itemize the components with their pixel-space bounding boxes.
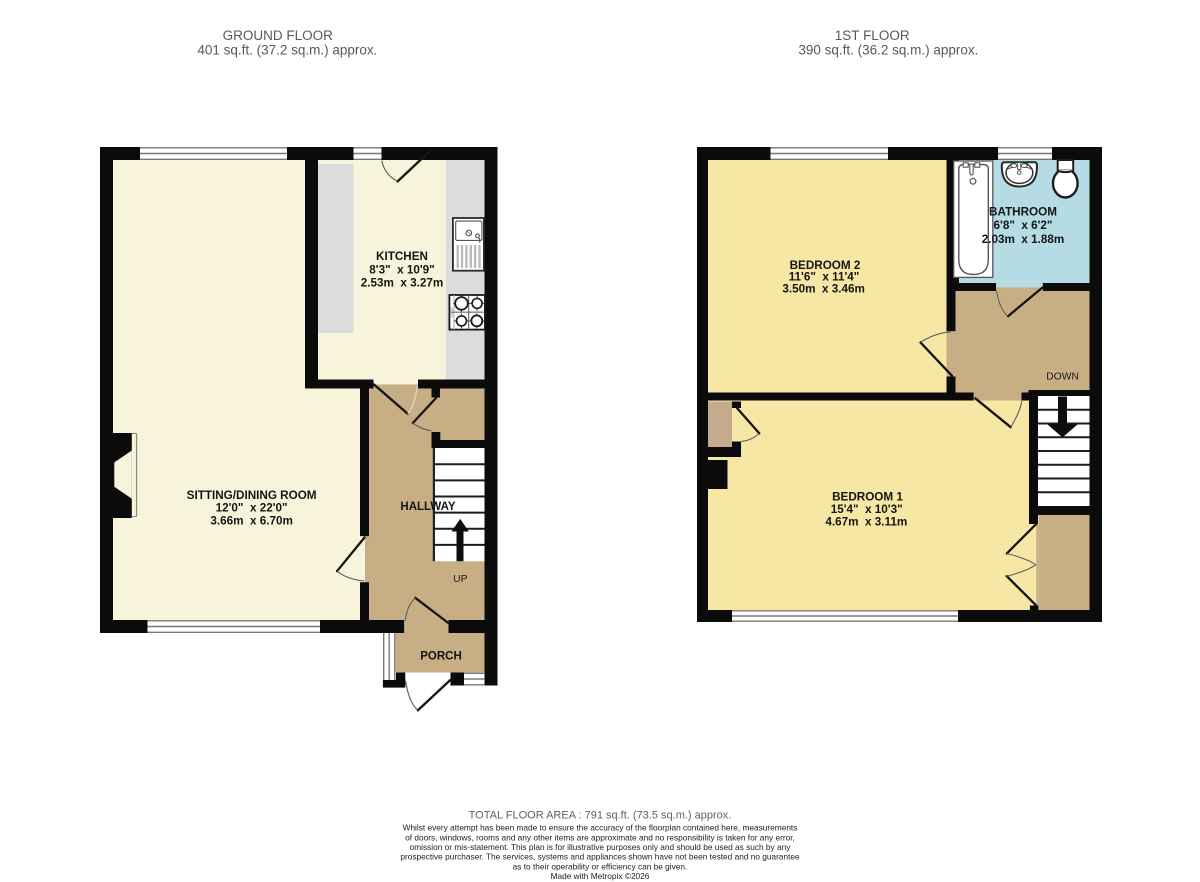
svg-text:prospective purchaser. The ser: prospective purchaser. The services, sys… (400, 852, 800, 862)
svg-text:BATHROOM: BATHROOM (989, 205, 1057, 218)
svg-text:KITCHEN: KITCHEN (376, 250, 428, 263)
svg-text:BEDROOM 1: BEDROOM 1 (832, 491, 903, 504)
svg-text:HALLWAY: HALLWAY (400, 501, 455, 513)
svg-text:4.67m x 3.11m: 4.67m x 3.11m (825, 515, 907, 528)
svg-text:3.50m x 3.46m: 3.50m x 3.46m (782, 282, 865, 295)
svg-text:GROUND FLOOR: GROUND FLOOR (223, 28, 334, 43)
svg-text:1ST FLOOR: 1ST FLOOR (835, 28, 910, 43)
svg-text:PORCH: PORCH (420, 650, 462, 662)
svg-text:5000: 5000 (449, 307, 454, 318)
svg-text:omission or mis-statement. Thi: omission or mis-statement. This plan is … (410, 842, 792, 852)
svg-text:2.53m x 3.27m: 2.53m x 3.27m (361, 276, 444, 289)
svg-text:12'0" x 22'0": 12'0" x 22'0" (216, 502, 288, 515)
svg-text:Whilst every attempt has been: Whilst every attempt has been made to en… (403, 823, 798, 833)
svg-text:3.66m x 6.70m: 3.66m x 6.70m (210, 514, 293, 527)
svg-text:of doors, windows, rooms and a: of doors, windows, rooms and any other i… (405, 832, 795, 842)
svg-text:Made with Metropix ©2026: Made with Metropix ©2026 (551, 871, 650, 881)
svg-text:as to their operability or eff: as to their operability or efficiency ca… (513, 861, 688, 871)
svg-text:SITTING/DINING ROOM: SITTING/DINING ROOM (187, 489, 317, 502)
svg-text:TOTAL FLOOR AREA : 791 sq.ft.: TOTAL FLOOR AREA : 791 sq.ft. (73.5 sq.m… (469, 809, 732, 821)
svg-text:390 sq.ft. (36.2 sq.m.) approx: 390 sq.ft. (36.2 sq.m.) approx. (798, 43, 978, 58)
svg-text:401 sq.ft. (37.2 sq.m.) approx: 401 sq.ft. (37.2 sq.m.) approx. (197, 43, 377, 58)
svg-text:DOWN: DOWN (1046, 371, 1079, 382)
svg-text:6'8" x 6'2": 6'8" x 6'2" (994, 219, 1053, 232)
svg-text:15'4" x 10'3": 15'4" x 10'3" (831, 503, 903, 516)
svg-text:8'3" x 10'9": 8'3" x 10'9" (369, 263, 434, 276)
svg-text:2.03m x 1.88m: 2.03m x 1.88m (982, 233, 1065, 246)
svg-text:UP: UP (453, 574, 467, 585)
